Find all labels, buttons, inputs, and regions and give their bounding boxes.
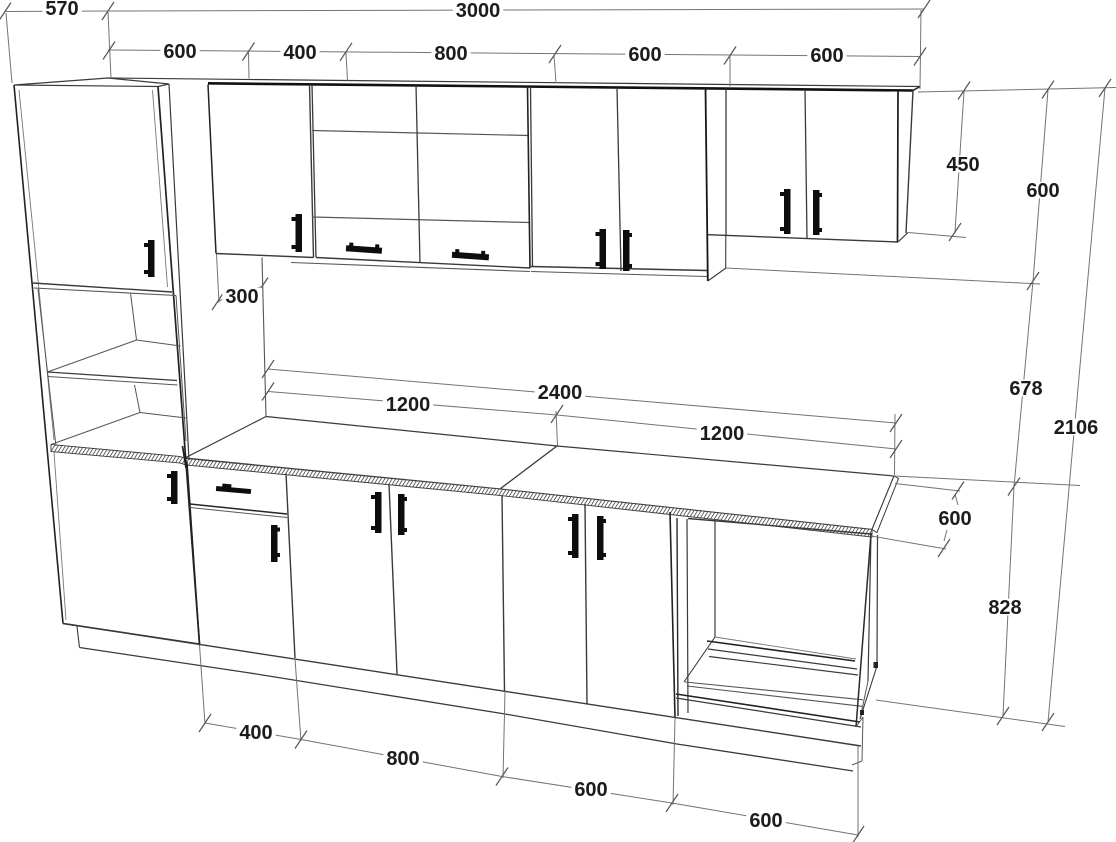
svg-text:600: 600 [938, 508, 971, 530]
svg-text:2400: 2400 [538, 382, 583, 404]
svg-text:800: 800 [386, 748, 419, 770]
svg-text:300: 300 [225, 286, 258, 308]
svg-text:678: 678 [1009, 378, 1042, 400]
svg-text:800: 800 [434, 43, 467, 65]
svg-text:600: 600 [628, 44, 661, 66]
svg-text:400: 400 [283, 42, 316, 64]
svg-text:600: 600 [163, 41, 196, 63]
svg-text:600: 600 [810, 45, 843, 67]
svg-text:570: 570 [45, 0, 78, 20]
svg-text:450: 450 [946, 154, 979, 176]
svg-text:600: 600 [749, 810, 782, 832]
svg-text:400: 400 [239, 722, 272, 744]
svg-text:600: 600 [574, 779, 607, 801]
svg-text:1200: 1200 [386, 394, 431, 416]
svg-text:828: 828 [988, 597, 1021, 619]
svg-text:600: 600 [1026, 180, 1059, 202]
svg-text:1200: 1200 [700, 423, 745, 445]
svg-text:2106: 2106 [1054, 417, 1099, 439]
svg-text:3000: 3000 [456, 0, 501, 22]
